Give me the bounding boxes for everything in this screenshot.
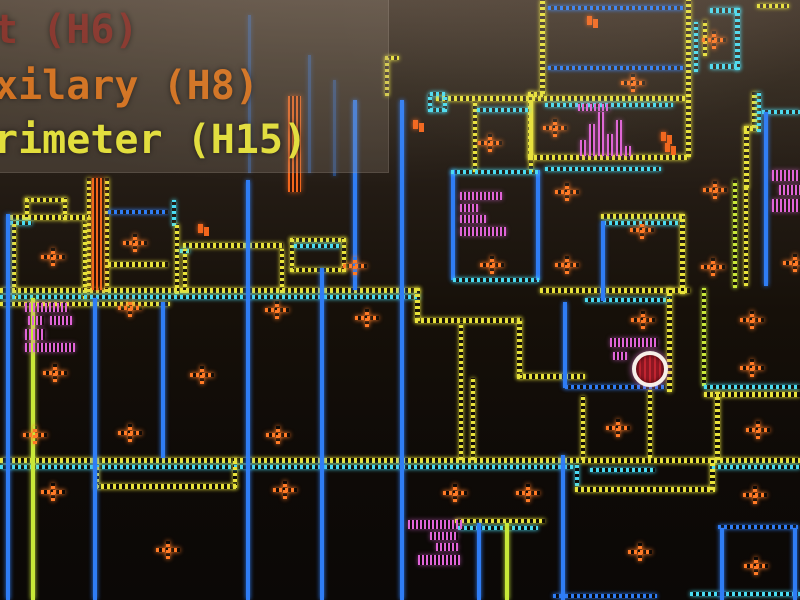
cross-marker [631,311,655,329]
machine-block [460,204,478,212]
wall-segment [290,268,346,272]
corridor-line [561,455,565,600]
wall-segment [702,288,706,386]
small-marker [587,16,592,25]
cross-marker [516,484,540,502]
cross-marker [628,543,652,561]
wall-segment [233,458,237,488]
wall-segment [95,484,237,489]
legend-panel: t (H6) xilary (H8) rimeter (H15) [0,0,389,173]
wall-segment [415,288,420,321]
wall-segment [0,465,573,469]
legend-item-auxilary-h8: xilary (H8) [0,64,259,108]
wall-segment [477,108,529,112]
wall-segment [430,92,445,96]
small-marker [413,120,418,129]
wall-segment [648,390,652,458]
wall-segment [183,249,187,293]
player-marker [632,351,668,387]
corridor-line [601,221,605,301]
wall-segment [290,238,346,242]
wall-segment [540,0,545,94]
wall-segment [548,6,684,10]
wall-segment [710,8,740,13]
screen: t (H6) xilary (H8) rimeter (H15) [0,0,800,600]
corridor-line [764,112,768,286]
wall-segment [10,215,90,220]
wall-segment [105,178,109,292]
cross-marker [41,483,65,501]
cross-marker [746,421,770,439]
cross-marker [273,481,297,499]
wall-segment [529,101,533,172]
wall-segment [575,487,715,492]
wall-segment [451,170,539,174]
machine-block [779,185,800,195]
cross-marker [630,221,654,239]
cross-marker [555,256,579,274]
wall-segment [715,392,720,460]
cross-marker [265,301,289,319]
wall-segment [517,374,585,379]
cross-marker [156,541,180,559]
corridor-line [93,298,97,600]
machine-block [589,124,595,156]
machine-block [460,192,502,200]
wall-segment [710,64,740,69]
cross-marker [606,419,630,437]
cross-marker [740,359,764,377]
machine-block [616,120,622,156]
cross-marker [343,257,367,275]
wall-segment [87,178,91,292]
machine-block [430,532,458,540]
machine-block [25,329,45,340]
wall-segment [280,249,284,293]
cross-marker [783,254,800,272]
machine-block [578,104,610,111]
wall-segment [517,318,522,378]
wall-segment [108,262,168,267]
hatch-block [92,178,104,290]
cross-marker [703,181,727,199]
machine-block [610,338,658,347]
wall-segment [294,244,340,248]
corridor-line [563,302,567,388]
wall-segment [415,318,521,323]
machine-block [25,343,75,352]
wall-segment [581,396,585,460]
cross-marker [702,31,726,49]
legend-item-perimeter-h15: rimeter (H15) [0,118,307,162]
wall-segment [735,8,740,70]
wall-segment [744,126,749,188]
wall-segment [548,66,684,70]
wall-segment [458,526,538,530]
wall-segment [690,592,800,596]
wall-segment [108,210,168,214]
machine-block [613,352,627,360]
wall-segment [733,180,737,288]
wall-segment [553,594,657,598]
cross-marker [43,364,67,382]
corridor-line [477,523,481,600]
wall-segment [585,298,670,302]
machine-block [772,199,800,212]
cross-marker [23,426,47,444]
cross-marker [266,426,290,444]
corridor-line [451,170,455,280]
wall-segment [718,525,798,529]
cross-marker [621,74,645,92]
cross-marker [744,557,768,575]
cross-marker [478,134,502,152]
machine-block [625,146,631,156]
cross-marker [543,119,567,137]
cross-marker [743,486,767,504]
wall-segment [601,214,683,219]
machine-block [418,555,460,565]
wall-segment [453,278,539,282]
wall-segment [757,92,761,132]
wall-segment [575,464,579,486]
wall-segment [430,108,445,112]
wall-segment [667,288,672,392]
wall-segment [686,0,691,157]
machine-block [408,520,462,529]
wall-segment [590,468,655,472]
cross-marker [118,299,142,317]
machine-block [436,543,458,551]
machine-block [598,112,604,156]
machine-block [580,140,586,156]
wall-segment [710,458,715,490]
corridor-line [6,214,10,600]
wall-segment [704,385,800,389]
wall-segment [175,224,179,294]
wall-segment [545,167,661,171]
cross-marker [118,424,142,442]
cross-marker [123,234,147,252]
small-marker [665,143,670,152]
wall-segment [172,200,176,226]
corridor-line [400,100,404,600]
wall-segment [757,4,789,8]
wall-segment [459,322,463,460]
cross-marker [555,183,579,201]
corridor-line [320,268,324,600]
wall-segment [183,243,283,248]
small-marker [661,132,666,141]
machine-block [772,170,800,181]
wall-segment [0,288,420,293]
wall-segment [680,214,685,294]
cross-marker [480,256,504,274]
wall-segment [744,186,748,286]
wall-segment [0,295,420,299]
cross-marker [41,248,65,266]
wall-segment [471,378,475,460]
machine-block [25,303,69,312]
corridor-line [536,170,540,280]
wall-segment [712,465,800,469]
corridor-line [505,523,509,600]
cross-marker [701,258,725,276]
cross-marker [355,309,379,327]
machine-block [460,215,486,223]
wall-segment [25,198,67,202]
machine-block [28,316,44,325]
corridor-line [246,180,250,600]
small-marker [198,224,203,233]
corridor-line [720,528,724,600]
machine-block [607,134,613,156]
machine-block [460,227,506,236]
cross-marker [190,366,214,384]
corridor-line [161,302,165,458]
cross-marker [443,484,467,502]
machine-block [50,316,72,325]
wall-segment [694,22,698,72]
cross-marker [740,311,764,329]
legend-item-h6: t (H6) [0,8,139,52]
wall-segment [455,519,545,523]
corridor-line [793,528,797,600]
